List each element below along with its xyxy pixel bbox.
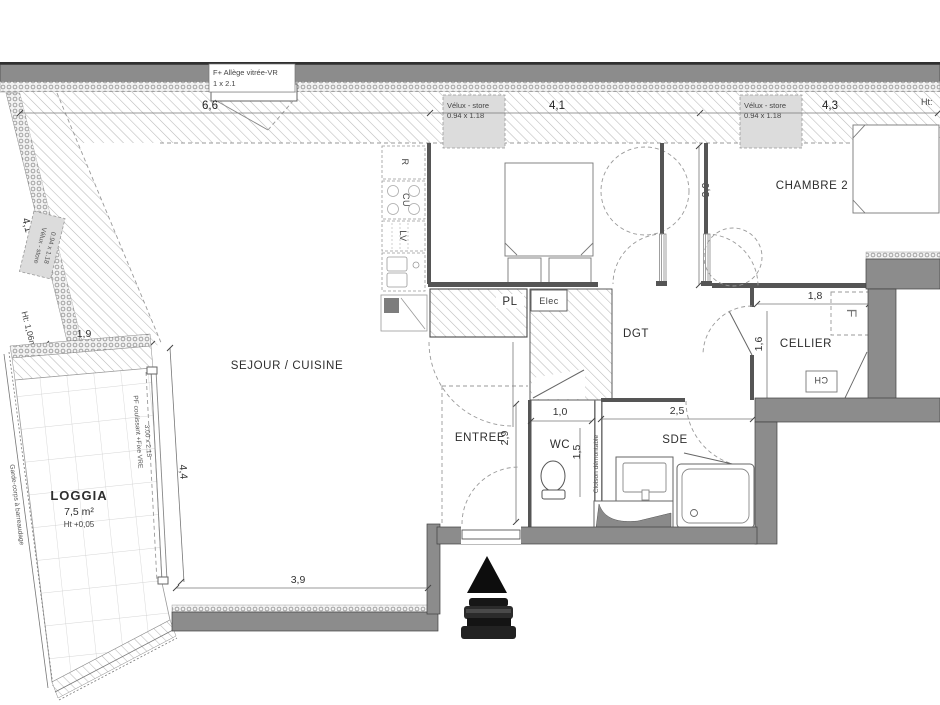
dim-sejour-bottom: 3,9 — [291, 574, 306, 586]
dgt-label: DGT — [623, 328, 649, 340]
sde: 2,5 SDE — [594, 398, 756, 530]
fridge-label: R — [400, 159, 410, 166]
facade-window-size: 1 x 2.1 — [213, 79, 236, 88]
dim-chambre2-width: 4,3 — [822, 100, 838, 112]
cellier-door2-leaf — [845, 352, 867, 398]
velux-mid-size: 0.94 x 1.18 — [447, 111, 484, 120]
kitchen-sink — [382, 253, 425, 291]
freezer-label: F — [844, 309, 860, 318]
velux-window-right: Vélux - store 0.94 x 1.18 — [740, 95, 802, 148]
elec-closet: Elec — [530, 289, 612, 400]
dim-loggia-side: 4,4 — [176, 464, 189, 480]
velux-mid-label: Vélux - store — [447, 101, 489, 110]
velux-right-label: Vélux - store — [744, 101, 786, 110]
entry-door-panel — [462, 530, 520, 539]
wc: Cloison démontable WC 1,0 1,5 — [528, 400, 603, 528]
stamp-icon — [461, 598, 516, 639]
sejour-cuisine: SEJOUR / CUISINE 3,9 — [172, 360, 440, 631]
step-element — [594, 501, 673, 530]
entree-label: ENTREE — [455, 432, 505, 444]
dim-wc-width: 1,0 — [553, 406, 568, 418]
dim-sejour-width: 6,6 — [202, 100, 218, 112]
dim-cellier-depth: 1,6 — [753, 337, 765, 352]
pl-door-swing — [429, 342, 513, 426]
floor-plan-canvas: 4,1 Vélux - store 0.94 x 1.18 Ht: 1,06m … — [0, 0, 940, 705]
bed-chambre2 — [853, 125, 939, 213]
hall-arm — [428, 143, 872, 288]
partition-label: Cloison démontable — [593, 435, 600, 494]
velux-right-size: 0.94 x 1.18 — [744, 111, 781, 120]
kitchen-strip: R CU LV — [381, 143, 431, 331]
bathroom-sink — [616, 457, 673, 502]
height-note-left: Ht: 1,06m — [20, 310, 39, 348]
floor-plan: 4,1 Vélux - store 0.94 x 1.18 Ht: 1,06m … — [0, 0, 940, 705]
bed-chambre1 — [505, 163, 593, 283]
water-heater-label: CH — [814, 375, 828, 385]
toilet — [541, 461, 565, 499]
loggia: 1,9 LOGGIA 7,5 m² Ht +0,05 Garde-corps à… — [4, 328, 189, 700]
velux-window-mid: Vélux - store 0.94 x 1.18 — [443, 95, 505, 148]
loggia-area: 7,5 m² — [64, 506, 94, 518]
dim-loggia-top: 1,9 — [77, 328, 92, 340]
elec-label: Elec — [539, 296, 559, 306]
loggia-label: LOGGIA — [50, 488, 107, 503]
height-note-right: Ht: — [921, 97, 933, 107]
shower-tray — [677, 464, 754, 528]
sde-door-swing — [686, 401, 752, 467]
loggia-height: Ht +0,05 — [64, 520, 95, 529]
north-arrow-icon — [467, 556, 507, 593]
dim-entree-depth: 2,9 — [499, 431, 511, 446]
top-exterior-wall — [0, 62, 940, 92]
cellier-door-swing — [703, 306, 752, 355]
cellier: 1,8 1,6 F CELLIER CH — [703, 283, 874, 404]
pl-label: PL — [502, 296, 517, 308]
guardrail-label: Garde-corps à barreaudage — [8, 464, 25, 546]
pl-closet: PL — [430, 289, 527, 337]
dim-chambre1-width: 4,1 — [549, 100, 565, 112]
dim-sde-width: 2,5 — [670, 405, 685, 417]
dishwasher-label: LV — [398, 230, 408, 241]
sde-label: SDE — [662, 434, 687, 446]
dim-cellier-width: 1,8 — [808, 290, 823, 302]
cellier-label: CELLIER — [780, 338, 832, 350]
entree: ENTREE 2,9 — [429, 342, 528, 525]
cellier-door-leaf — [729, 311, 752, 355]
dim-wc-depth: 1,5 — [571, 445, 583, 460]
chambre2-label: CHAMBRE 2 — [776, 180, 849, 192]
wc-label: WC — [550, 439, 570, 451]
entry-door-swing — [462, 467, 519, 524]
sejour-label: SEJOUR / CUISINE — [231, 360, 343, 372]
chambre1-door-swing — [613, 234, 663, 284]
facade-window-label: F+ Allège vitrée-VR — [213, 68, 278, 77]
cooktop-label: CU — [401, 193, 411, 207]
